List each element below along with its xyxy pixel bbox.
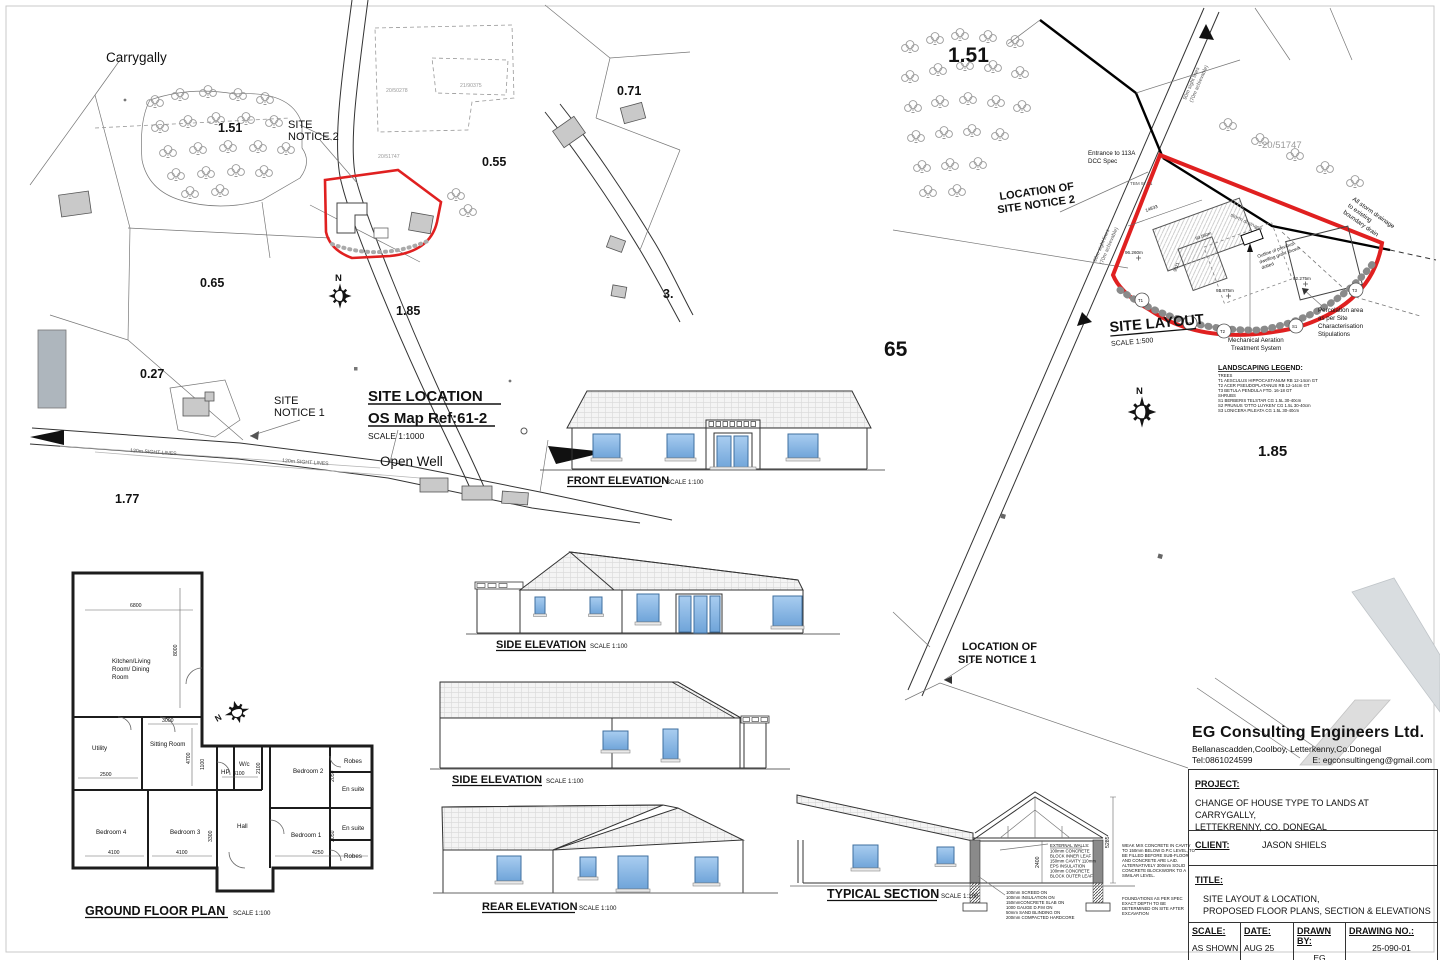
area-label: 0.27 bbox=[140, 367, 164, 381]
dim-label: 14833 bbox=[1145, 204, 1159, 213]
room-label: Utility bbox=[92, 745, 108, 752]
woodland-trees bbox=[147, 86, 477, 217]
svg-text:Percolation area: Percolation area bbox=[1318, 307, 1364, 314]
front-elevation-label: FRONT ELEVATION bbox=[567, 475, 669, 487]
entrance-door bbox=[717, 436, 731, 469]
dim-label: 5285 bbox=[1105, 836, 1111, 848]
treatment-note: Mechanical Aeration Treatment System bbox=[1228, 337, 1284, 352]
date-label: DATE: bbox=[1244, 926, 1290, 936]
drawing-title-line1: SITE LAYOUT & LOCATION, bbox=[1203, 893, 1431, 905]
building bbox=[502, 491, 529, 505]
section-scale: SCALE 1:100 bbox=[941, 893, 979, 900]
room-label: Bedroom 2 bbox=[293, 768, 324, 775]
client-label: CLIENT: bbox=[1195, 840, 1230, 850]
entrance-door bbox=[734, 436, 748, 469]
window bbox=[773, 596, 802, 626]
ground-floor-plan: Kitchen/Living Room/ Dining Room Utility… bbox=[73, 573, 372, 918]
spot-level: 96.260m bbox=[1125, 250, 1143, 255]
window bbox=[535, 597, 545, 614]
section-label: TYPICAL SECTION bbox=[827, 887, 939, 901]
side-elevation-scale: SCALE 1:100 bbox=[590, 643, 628, 650]
glazed-door bbox=[694, 596, 707, 633]
window bbox=[937, 847, 954, 864]
drawn-by-label: DRAWN BY: bbox=[1297, 926, 1342, 946]
rear-elevation-scale: SCALE 1:100 bbox=[579, 905, 617, 912]
drawing-sheet: N Carrygally 1.51 0.65 0.71 0.55 1.85 0.… bbox=[0, 0, 1440, 960]
stream-band bbox=[1352, 578, 1440, 712]
plan-label: GROUND FLOOR PLAN bbox=[85, 904, 225, 918]
area-label: 1.85 bbox=[396, 304, 420, 318]
scale-date-row: SCALE: AS SHOWN DATE: AUG 25 DRAWN BY: E… bbox=[1189, 923, 1437, 960]
building bbox=[553, 116, 586, 147]
typical-section: 5285 2400 EXTERNAL WALLS: 100mm CONCRETE… bbox=[790, 792, 1196, 920]
building bbox=[59, 191, 92, 217]
floor-buildup-note: 100mm SCREED ON 100mm INSULATION ON 150m… bbox=[1006, 890, 1075, 920]
rear-elevation: REAR ELEVATION SCALE 1:100 bbox=[433, 805, 778, 913]
outbuilding bbox=[374, 228, 388, 238]
north-label: N bbox=[1136, 386, 1143, 397]
spot-level: 92.275m bbox=[1293, 276, 1311, 281]
north-label: N bbox=[213, 712, 223, 724]
road-arrow-icon bbox=[1199, 24, 1214, 40]
svg-text:SITE NOTICE 1: SITE NOTICE 1 bbox=[958, 654, 1036, 666]
dwelling-note: Outline of previous dwelling grant shown… bbox=[1257, 239, 1304, 270]
dim-label: 2100 bbox=[256, 762, 262, 774]
dim-label: 3000 bbox=[162, 718, 174, 724]
company-name: EG Consulting Engineers Ltd. bbox=[1192, 724, 1436, 742]
road-arrow-icon bbox=[30, 430, 64, 445]
dim-label: 2500 bbox=[100, 772, 112, 778]
building bbox=[420, 478, 448, 492]
site-notice-2-label: NOTICE 2 bbox=[288, 131, 339, 143]
room-label: HP bbox=[221, 769, 230, 776]
window bbox=[497, 856, 521, 881]
window bbox=[695, 857, 718, 883]
dim-label: 4250 bbox=[312, 850, 324, 856]
svg-text:EXTERNAL WALLS:: EXTERNAL WALLS: bbox=[1050, 843, 1089, 848]
dim-label: 4100 bbox=[176, 850, 188, 856]
room-label: Robes bbox=[344, 758, 362, 765]
front-elevation: FRONT ELEVATION SCALE 1:100 bbox=[540, 391, 885, 487]
dim-label: 3300 bbox=[208, 830, 214, 842]
svg-text:SCALE 1:500: SCALE 1:500 bbox=[1111, 337, 1154, 348]
north-compass-icon bbox=[328, 283, 351, 308]
room-label: Robes bbox=[344, 853, 362, 860]
window bbox=[853, 845, 878, 868]
side-elevation-label: SIDE ELEVATION bbox=[496, 639, 586, 651]
client-row: CLIENT: JASON SHIELS bbox=[1189, 831, 1437, 866]
spot-level: 93.875m bbox=[1216, 288, 1234, 293]
room-label: Bedroom 3 bbox=[170, 829, 201, 836]
room-label: Sitting Room bbox=[150, 741, 185, 748]
date-value: AUG 25 bbox=[1244, 943, 1290, 953]
drawing-no-label: DRAWING NO.: bbox=[1349, 926, 1434, 936]
building bbox=[38, 330, 66, 408]
site-notice-1-label: NOTICE 1 bbox=[274, 407, 325, 419]
room-label: W/c bbox=[239, 761, 250, 768]
tbm-label: TBM 97.21 bbox=[1130, 181, 1153, 186]
plan-dim-lines bbox=[78, 588, 368, 856]
entrance-note: Entrance to 113A bbox=[1088, 150, 1136, 157]
area-label: 3. bbox=[663, 287, 673, 301]
plant-tag: T3 bbox=[1352, 288, 1358, 293]
north-compass-icon bbox=[1128, 396, 1157, 427]
window bbox=[593, 434, 620, 458]
plant-tag: S1 bbox=[1292, 324, 1298, 329]
window bbox=[618, 856, 648, 889]
drawing-no-value: 25-090-01 bbox=[1349, 943, 1434, 953]
room-label: Hall bbox=[237, 823, 248, 830]
company-tel: Tel:0861024599 bbox=[1192, 755, 1253, 765]
room-label: Bedroom 1 bbox=[291, 832, 322, 839]
svg-text:as per Site: as per Site bbox=[1318, 315, 1348, 322]
side-elevation-scale: SCALE 1:100 bbox=[546, 778, 584, 785]
landscaping-legend: LANDSCAPING LEGEND: TREES T1 AESCULUS HI… bbox=[1218, 365, 1318, 413]
sight-lines-label: 120m SIGHT LINES bbox=[130, 448, 177, 457]
scale-value: AS SHOWN bbox=[1192, 943, 1237, 953]
svg-text:LOCATION OF: LOCATION OF bbox=[962, 641, 1037, 653]
drawn-by-value: EG bbox=[1297, 953, 1342, 960]
map-ref: OS Map Ref:61-2 bbox=[368, 410, 487, 427]
area-label: 1.51 bbox=[218, 121, 242, 135]
area-label: 0.71 bbox=[617, 84, 641, 98]
parcel-ref: 21/90375 bbox=[460, 83, 482, 89]
dim-label: 2050 bbox=[330, 770, 336, 782]
window bbox=[667, 434, 694, 458]
building bbox=[462, 486, 492, 500]
cavity-note: WEAK MIX CONCRETE IN CAVITY TO 150mm BEL… bbox=[1122, 843, 1196, 878]
road-sight-label: 90m sight lines (70m achievable) bbox=[1182, 62, 1210, 104]
road-sight-label: 90m sight lines (70m achievable) bbox=[1092, 224, 1120, 266]
building bbox=[620, 102, 645, 123]
svg-text:BLOCK OUTER LEAF: BLOCK OUTER LEAF bbox=[1050, 874, 1093, 879]
parcel-ref: 20/51747 bbox=[378, 154, 400, 160]
svg-text:Stipulations: Stipulations bbox=[1318, 331, 1350, 338]
proposed-house bbox=[1153, 198, 1264, 296]
glazed-door bbox=[679, 596, 691, 632]
area-label: 65 bbox=[884, 338, 908, 361]
room-label: Kitchen/Living bbox=[112, 658, 151, 665]
svg-text:Mechanical Aeration: Mechanical Aeration bbox=[1228, 337, 1284, 344]
notice1-location-label: LOCATION OF SITE NOTICE 1 bbox=[958, 641, 1037, 666]
window bbox=[788, 434, 818, 458]
room-label: En suite bbox=[342, 786, 365, 793]
townland-label: Carrygally bbox=[106, 50, 167, 65]
area-label: 0.65 bbox=[200, 276, 224, 290]
side-elevation-1: SIDE ELEVATION SCALE 1:100 bbox=[466, 552, 840, 651]
dim-label: 6800 bbox=[130, 603, 142, 609]
external-wall-note: EXTERNAL WALLS: 100mm CONCRETE BLOCK INN… bbox=[1050, 843, 1096, 879]
plan-scale: SCALE 1:100 bbox=[233, 910, 271, 917]
entrance-note: DCC Spec bbox=[1088, 158, 1117, 165]
map-scale: SCALE 1:1000 bbox=[368, 431, 425, 441]
dim-label: 2050 bbox=[330, 830, 336, 842]
svg-text:EXCAVATION: EXCAVATION bbox=[1122, 911, 1149, 916]
site-layout-map: T1 T2 S1 T3 S2 N 1.51 65 1.85 20/51747 9… bbox=[884, 8, 1440, 768]
room-label: Room bbox=[112, 674, 129, 681]
svg-text:SIMILAR LEVEL.: SIMILAR LEVEL. bbox=[1122, 873, 1155, 878]
area-label: 1.85 bbox=[1258, 443, 1287, 460]
window bbox=[590, 597, 602, 614]
parcel-ref: 20/50278 bbox=[386, 88, 408, 94]
plant-tag: T1 bbox=[1138, 298, 1144, 303]
side-elevation-label: SIDE ELEVATION bbox=[452, 774, 542, 786]
project-line1: CHANGE OF HOUSE TYPE TO LANDS AT CARRYGA… bbox=[1195, 797, 1431, 821]
svg-text:S3 LONICERA PILEATA CG 1.5L 30: S3 LONICERA PILEATA CG 1.5L 30-40cm bbox=[1218, 408, 1300, 413]
window bbox=[637, 594, 659, 622]
front-elevation-scale: SCALE 1:100 bbox=[666, 479, 704, 486]
svg-text:200mm COMPACTED HARDCORE: 200mm COMPACTED HARDCORE bbox=[1006, 915, 1075, 920]
dim-label: 2400 bbox=[1035, 856, 1041, 868]
side-elevation-2: SIDE ELEVATION SCALE 1:100 bbox=[430, 682, 790, 786]
north-compass-icon bbox=[222, 698, 252, 727]
parcel-ref: 20/51747 bbox=[1262, 140, 1302, 151]
percolation-note: Percolation area as per Site Characteris… bbox=[1318, 307, 1364, 338]
project-row: PROJECT: CHANGE OF HOUSE TYPE TO LANDS A… bbox=[1189, 770, 1437, 831]
client-name: JASON SHIELS bbox=[1262, 840, 1327, 850]
proposed-dwelling bbox=[337, 203, 367, 233]
room-label: Bedroom 4 bbox=[96, 829, 127, 836]
window bbox=[663, 729, 678, 759]
scale-label: SCALE: bbox=[1192, 926, 1237, 936]
area-label: 1.51 bbox=[948, 44, 989, 67]
window bbox=[580, 857, 596, 877]
open-well-label: Open Well bbox=[380, 454, 443, 469]
area-label: 1.77 bbox=[115, 492, 139, 506]
project-label: PROJECT: bbox=[1195, 779, 1240, 789]
well-symbol-icon bbox=[521, 428, 527, 434]
title-row: TITLE: SITE LAYOUT & LOCATION, PROPOSED … bbox=[1189, 866, 1437, 923]
company-email: E: egconsultingeng@gmail.com bbox=[1312, 755, 1432, 765]
road-arrow-icon bbox=[1077, 312, 1092, 326]
north-label: N bbox=[335, 273, 342, 284]
title-label: TITLE: bbox=[1195, 875, 1223, 885]
dim-label: 3100 bbox=[233, 771, 245, 777]
rear-elevation-label: REAR ELEVATION bbox=[482, 901, 578, 913]
building bbox=[606, 236, 625, 253]
plant-tag: T2 bbox=[1220, 329, 1226, 334]
foundation bbox=[1086, 903, 1110, 911]
window bbox=[603, 731, 628, 750]
building bbox=[611, 285, 627, 298]
building bbox=[409, 212, 434, 234]
title-block: EG Consulting Engineers Ltd. Bellanascad… bbox=[1188, 722, 1438, 946]
svg-text:Characterisation: Characterisation bbox=[1318, 323, 1364, 330]
area-label: 0.55 bbox=[482, 155, 506, 169]
title-block-header: EG Consulting Engineers Ltd. Bellanascad… bbox=[1188, 722, 1438, 769]
foundation-note: FOUNDATIONS AS PER SPEC EXACT DEPTH TO B… bbox=[1122, 896, 1184, 916]
site-notice-2-label: SITE bbox=[288, 119, 312, 131]
dim-label: 8000 bbox=[173, 644, 179, 656]
drawing-title-line2: PROPOSED FLOOR PLANS, SECTION & ELEVATIO… bbox=[1203, 905, 1431, 917]
foundation bbox=[963, 903, 987, 911]
site-notice-1-label: SITE bbox=[274, 395, 298, 407]
svg-text:Treatment System: Treatment System bbox=[1231, 345, 1281, 352]
map-title: SITE LOCATION bbox=[368, 388, 483, 405]
company-address: Bellanascadden,Coolboy, Letterkenny,Co.D… bbox=[1192, 744, 1436, 754]
room-label: En suite bbox=[342, 825, 365, 832]
dim-label: 4700 bbox=[186, 752, 192, 764]
dim-label: 1100 bbox=[200, 759, 206, 770]
dim-label: 4100 bbox=[108, 850, 120, 856]
room-label: Room/ Dining bbox=[112, 666, 150, 673]
notice2-location-label: LOCATION OF SITE NOTICE 2 bbox=[995, 181, 1077, 217]
svg-text:LANDSCAPING LEGEND:: LANDSCAPING LEGEND: bbox=[1218, 365, 1303, 372]
glazed-door bbox=[710, 596, 720, 632]
